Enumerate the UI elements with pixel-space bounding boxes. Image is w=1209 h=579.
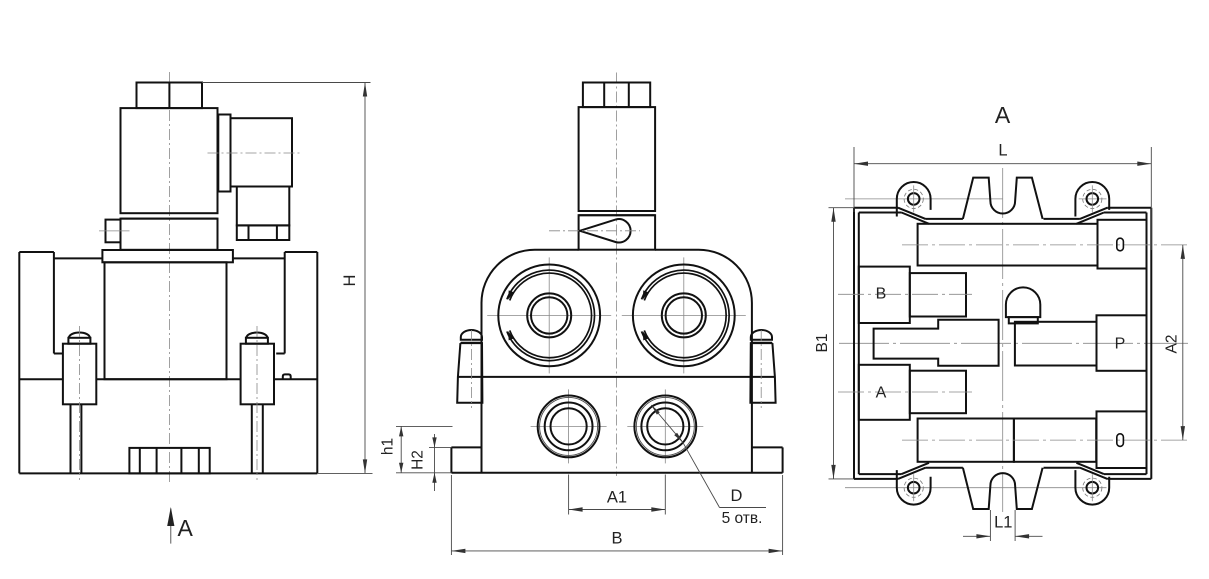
svg-text:D: D [731,487,743,505]
svg-text:5 отв.: 5 отв. [722,510,763,527]
svg-text:A: A [876,385,887,402]
svg-text:A1: A1 [607,489,627,507]
svg-text:H2: H2 [410,450,427,470]
svg-text:B: B [611,530,622,548]
svg-text:L1: L1 [994,514,1012,532]
svg-text:B1: B1 [814,334,831,353]
svg-text:A: A [178,515,194,541]
svg-text:h1: h1 [380,438,397,455]
svg-text:P: P [1115,335,1126,352]
svg-text:L: L [998,142,1007,160]
svg-text:B: B [876,285,887,302]
svg-text:H: H [341,275,359,287]
svg-text:A: A [995,102,1011,128]
svg-text:A2: A2 [1164,335,1181,354]
